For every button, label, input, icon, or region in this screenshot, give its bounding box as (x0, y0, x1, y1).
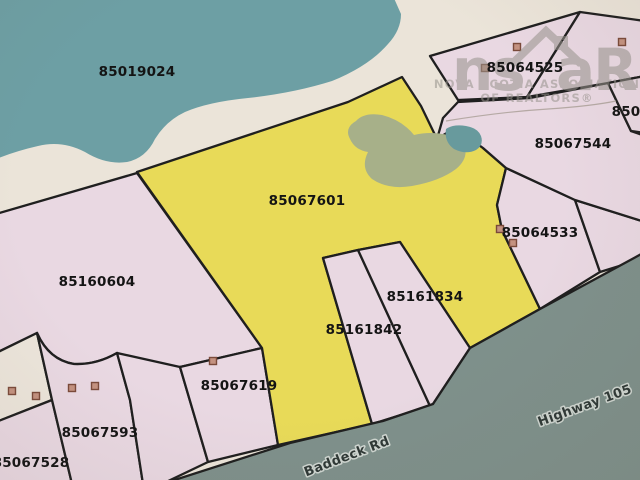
building-icon (210, 358, 217, 365)
parcel-label-85067528: 85067528 (0, 455, 69, 471)
parcel-label-85019024: 85019024 (99, 64, 176, 80)
parcel-label-85067593: 85067593 (62, 425, 139, 441)
parcel-label-85161842: 85161842 (326, 322, 403, 338)
watermark-line1: NOVA SCOTIA ASSOCIATION (434, 77, 640, 91)
parcel-label-85160604: 85160604 (59, 274, 136, 290)
building-icon (69, 385, 76, 392)
parcel-label-85064533: 85064533 (502, 225, 579, 241)
map-canvas: nsaRNOVA SCOTIA ASSOCIATIONOF REALTORS®8… (0, 0, 640, 480)
building-icon (9, 388, 16, 395)
watermark-line2: OF REALTORS® (480, 91, 593, 105)
building-icon (92, 383, 99, 390)
building-icon (33, 393, 40, 400)
map-screenshot: nsaRNOVA SCOTIA ASSOCIATIONOF REALTORS®8… (0, 0, 640, 480)
parcel-label-85067601: 85067601 (269, 193, 346, 209)
parcel-label-85067619: 85067619 (201, 378, 278, 394)
parcel-label-85161834: 85161834 (387, 289, 464, 305)
parcel-label-85067544: 85067544 (535, 136, 612, 152)
parcel-label-85064525: 85064525 (487, 60, 564, 76)
parcel-label-850: 850 (612, 104, 640, 120)
